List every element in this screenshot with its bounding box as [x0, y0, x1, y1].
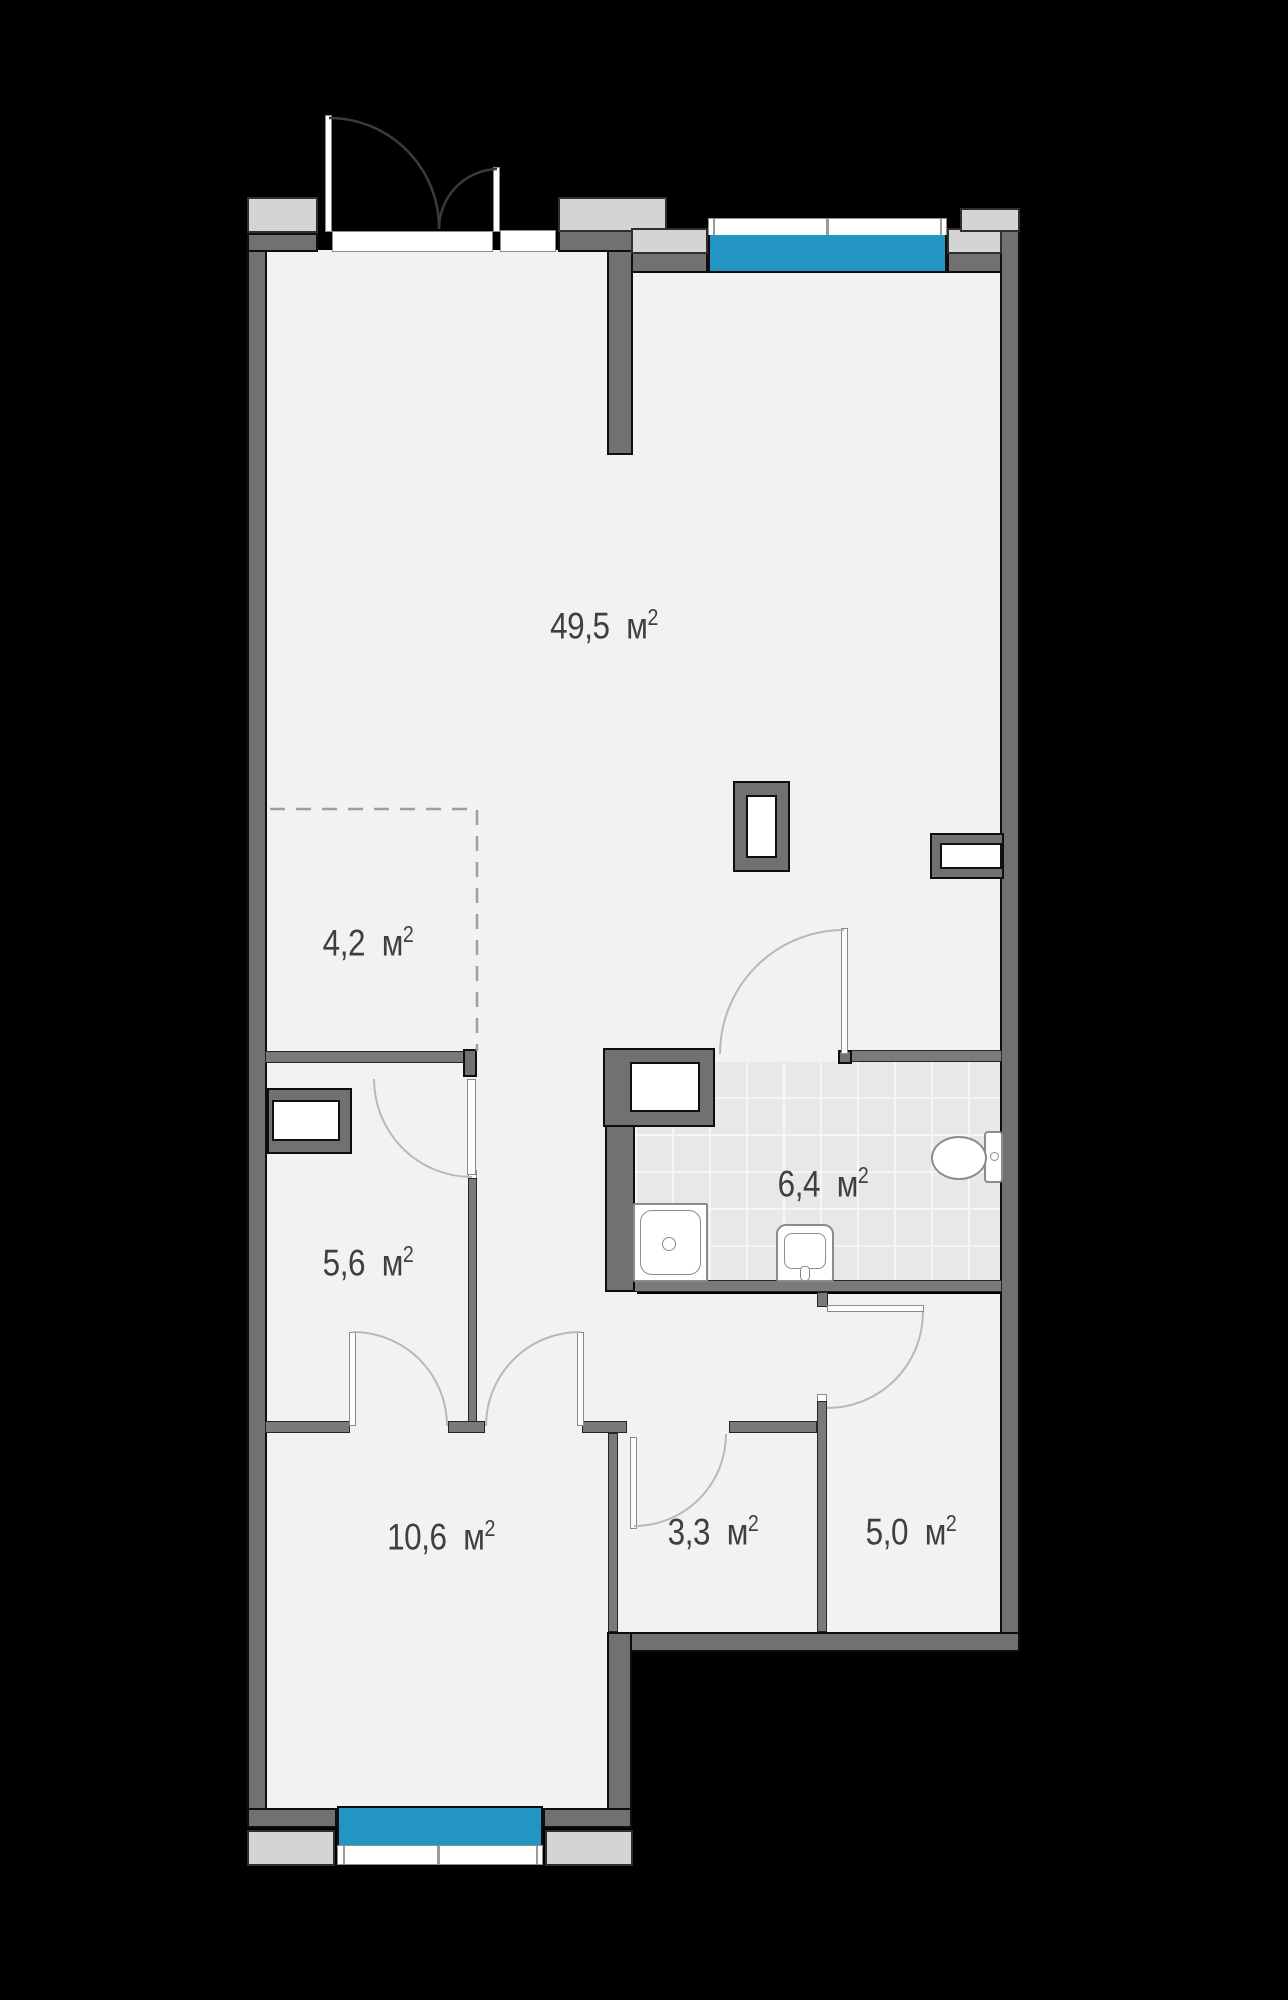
- room-area-label-10-6: 10,6 м2: [387, 1515, 495, 1558]
- room-area-label-5-0: 5,0 м2: [866, 1510, 957, 1553]
- entrance-arc-left: [329, 118, 439, 228]
- area-value: 5,0: [866, 1512, 908, 1553]
- area-unit: м2: [618, 606, 658, 647]
- floor-plan: 49,5 м2 4,2 м2 5,6 м2 6,4 м2 10,6 м2 3,3…: [0, 0, 1288, 2000]
- room-area-label-49-5: 49,5 м2: [550, 604, 658, 647]
- room-5-0-door-arc: [827, 1312, 923, 1408]
- area-unit: м2: [373, 1243, 413, 1284]
- area-value: 4,2: [323, 923, 365, 964]
- area-value: 49,5: [550, 606, 610, 647]
- room-area-label-3-3: 3,3 м2: [668, 1510, 759, 1553]
- door-swing-arcs: [0, 0, 1288, 2000]
- bathroom-door-arc: [720, 930, 844, 1054]
- area-value: 3,3: [668, 1512, 710, 1553]
- area-value: 10,6: [387, 1517, 447, 1558]
- area-unit: м2: [455, 1517, 495, 1558]
- area-value: 5,6: [323, 1243, 365, 1284]
- room-10-6-door-arc-a: [353, 1332, 447, 1426]
- entrance-arc-right: [439, 169, 497, 229]
- corridor-door-arc: [374, 1079, 472, 1177]
- room-10-6-door-arc-b: [486, 1332, 580, 1426]
- area-unit: м2: [373, 923, 413, 964]
- area-unit: м2: [718, 1512, 758, 1553]
- room-area-label-4-2: 4,2 м2: [323, 921, 414, 964]
- room-area-label-5-6: 5,6 м2: [323, 1241, 414, 1284]
- area-unit: м2: [828, 1164, 868, 1205]
- room-area-label-6-4: 6,4 м2: [778, 1162, 869, 1205]
- area-unit: м2: [916, 1512, 956, 1553]
- area-value: 6,4: [778, 1164, 820, 1205]
